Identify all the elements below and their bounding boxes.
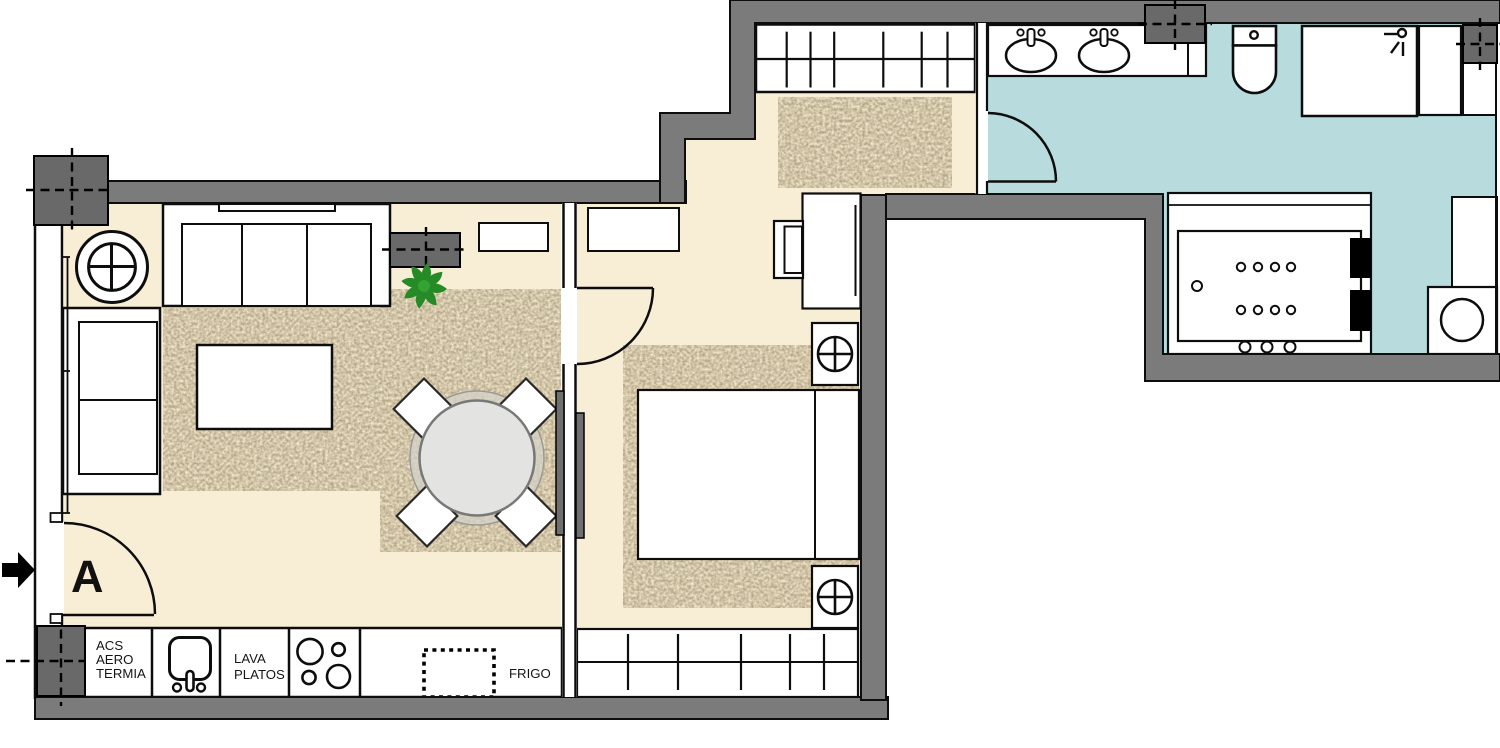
svg-text:ACS: ACS <box>96 638 123 653</box>
svg-text:A: A <box>71 551 104 602</box>
svg-text:TERMIA: TERMIA <box>96 666 146 681</box>
svg-text:FRIGO: FRIGO <box>509 666 551 681</box>
svg-text:AERO: AERO <box>96 652 133 667</box>
svg-text:LAVA: LAVA <box>234 651 266 666</box>
svg-text:PLATOS: PLATOS <box>234 667 285 682</box>
